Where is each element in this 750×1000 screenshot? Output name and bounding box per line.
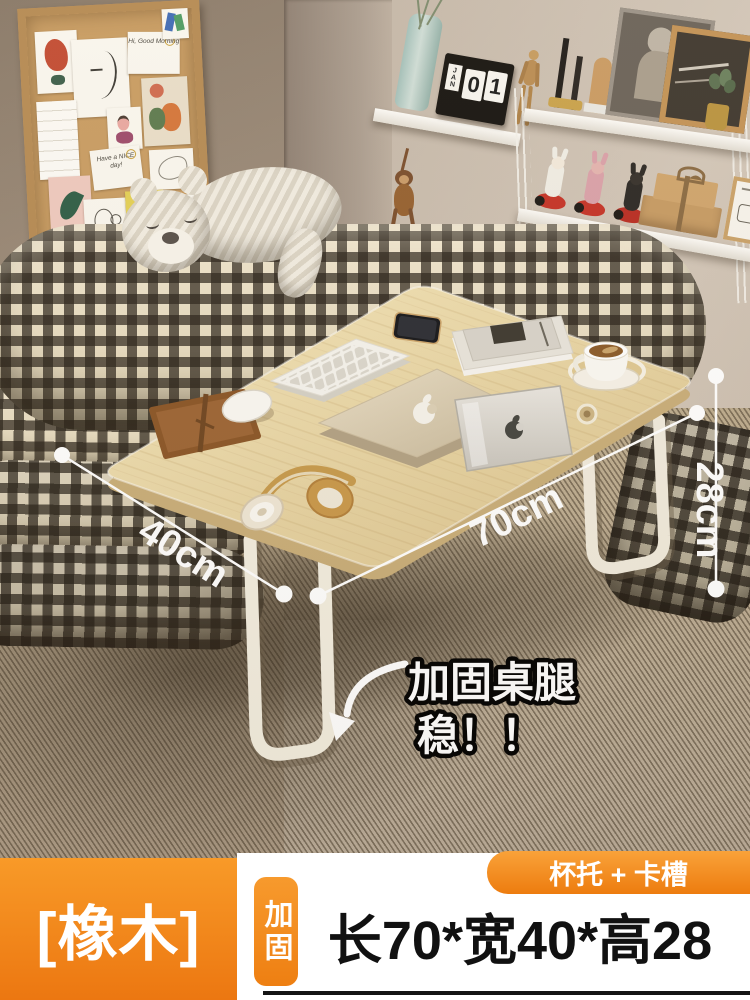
- callout-line1: 加固桌腿: [408, 659, 576, 706]
- variant-block: [橡木]: [0, 858, 237, 1000]
- product-image: Hi, Good Morning Have a NICE day!: [0, 0, 750, 1000]
- size-text: 长70*宽40*高28: [315, 896, 725, 975]
- dim-dot: [708, 368, 724, 384]
- dim-dot: [276, 586, 293, 603]
- height-label: 28cm: [688, 461, 730, 558]
- scene-photo: Hi, Good Morning Have a NICE day!: [0, 0, 750, 860]
- smartphone: [392, 312, 441, 344]
- dim-dot: [689, 405, 705, 421]
- dim-dot: [54, 447, 70, 463]
- reinforced-tab: 加固: [254, 877, 298, 986]
- divider-line: [263, 991, 750, 995]
- dim-dot: [310, 588, 327, 605]
- variant-label: [橡木]: [37, 886, 201, 973]
- table-and-annotations: 40cm 70cm 28cm 加固桌腿 稳！！: [0, 0, 750, 860]
- dimension-height: 28cm: [688, 368, 730, 598]
- feature-badge: 杯托 + 卡槽: [487, 851, 750, 894]
- callout-line2: 稳！！: [417, 712, 543, 759]
- dim-dot: [708, 581, 725, 598]
